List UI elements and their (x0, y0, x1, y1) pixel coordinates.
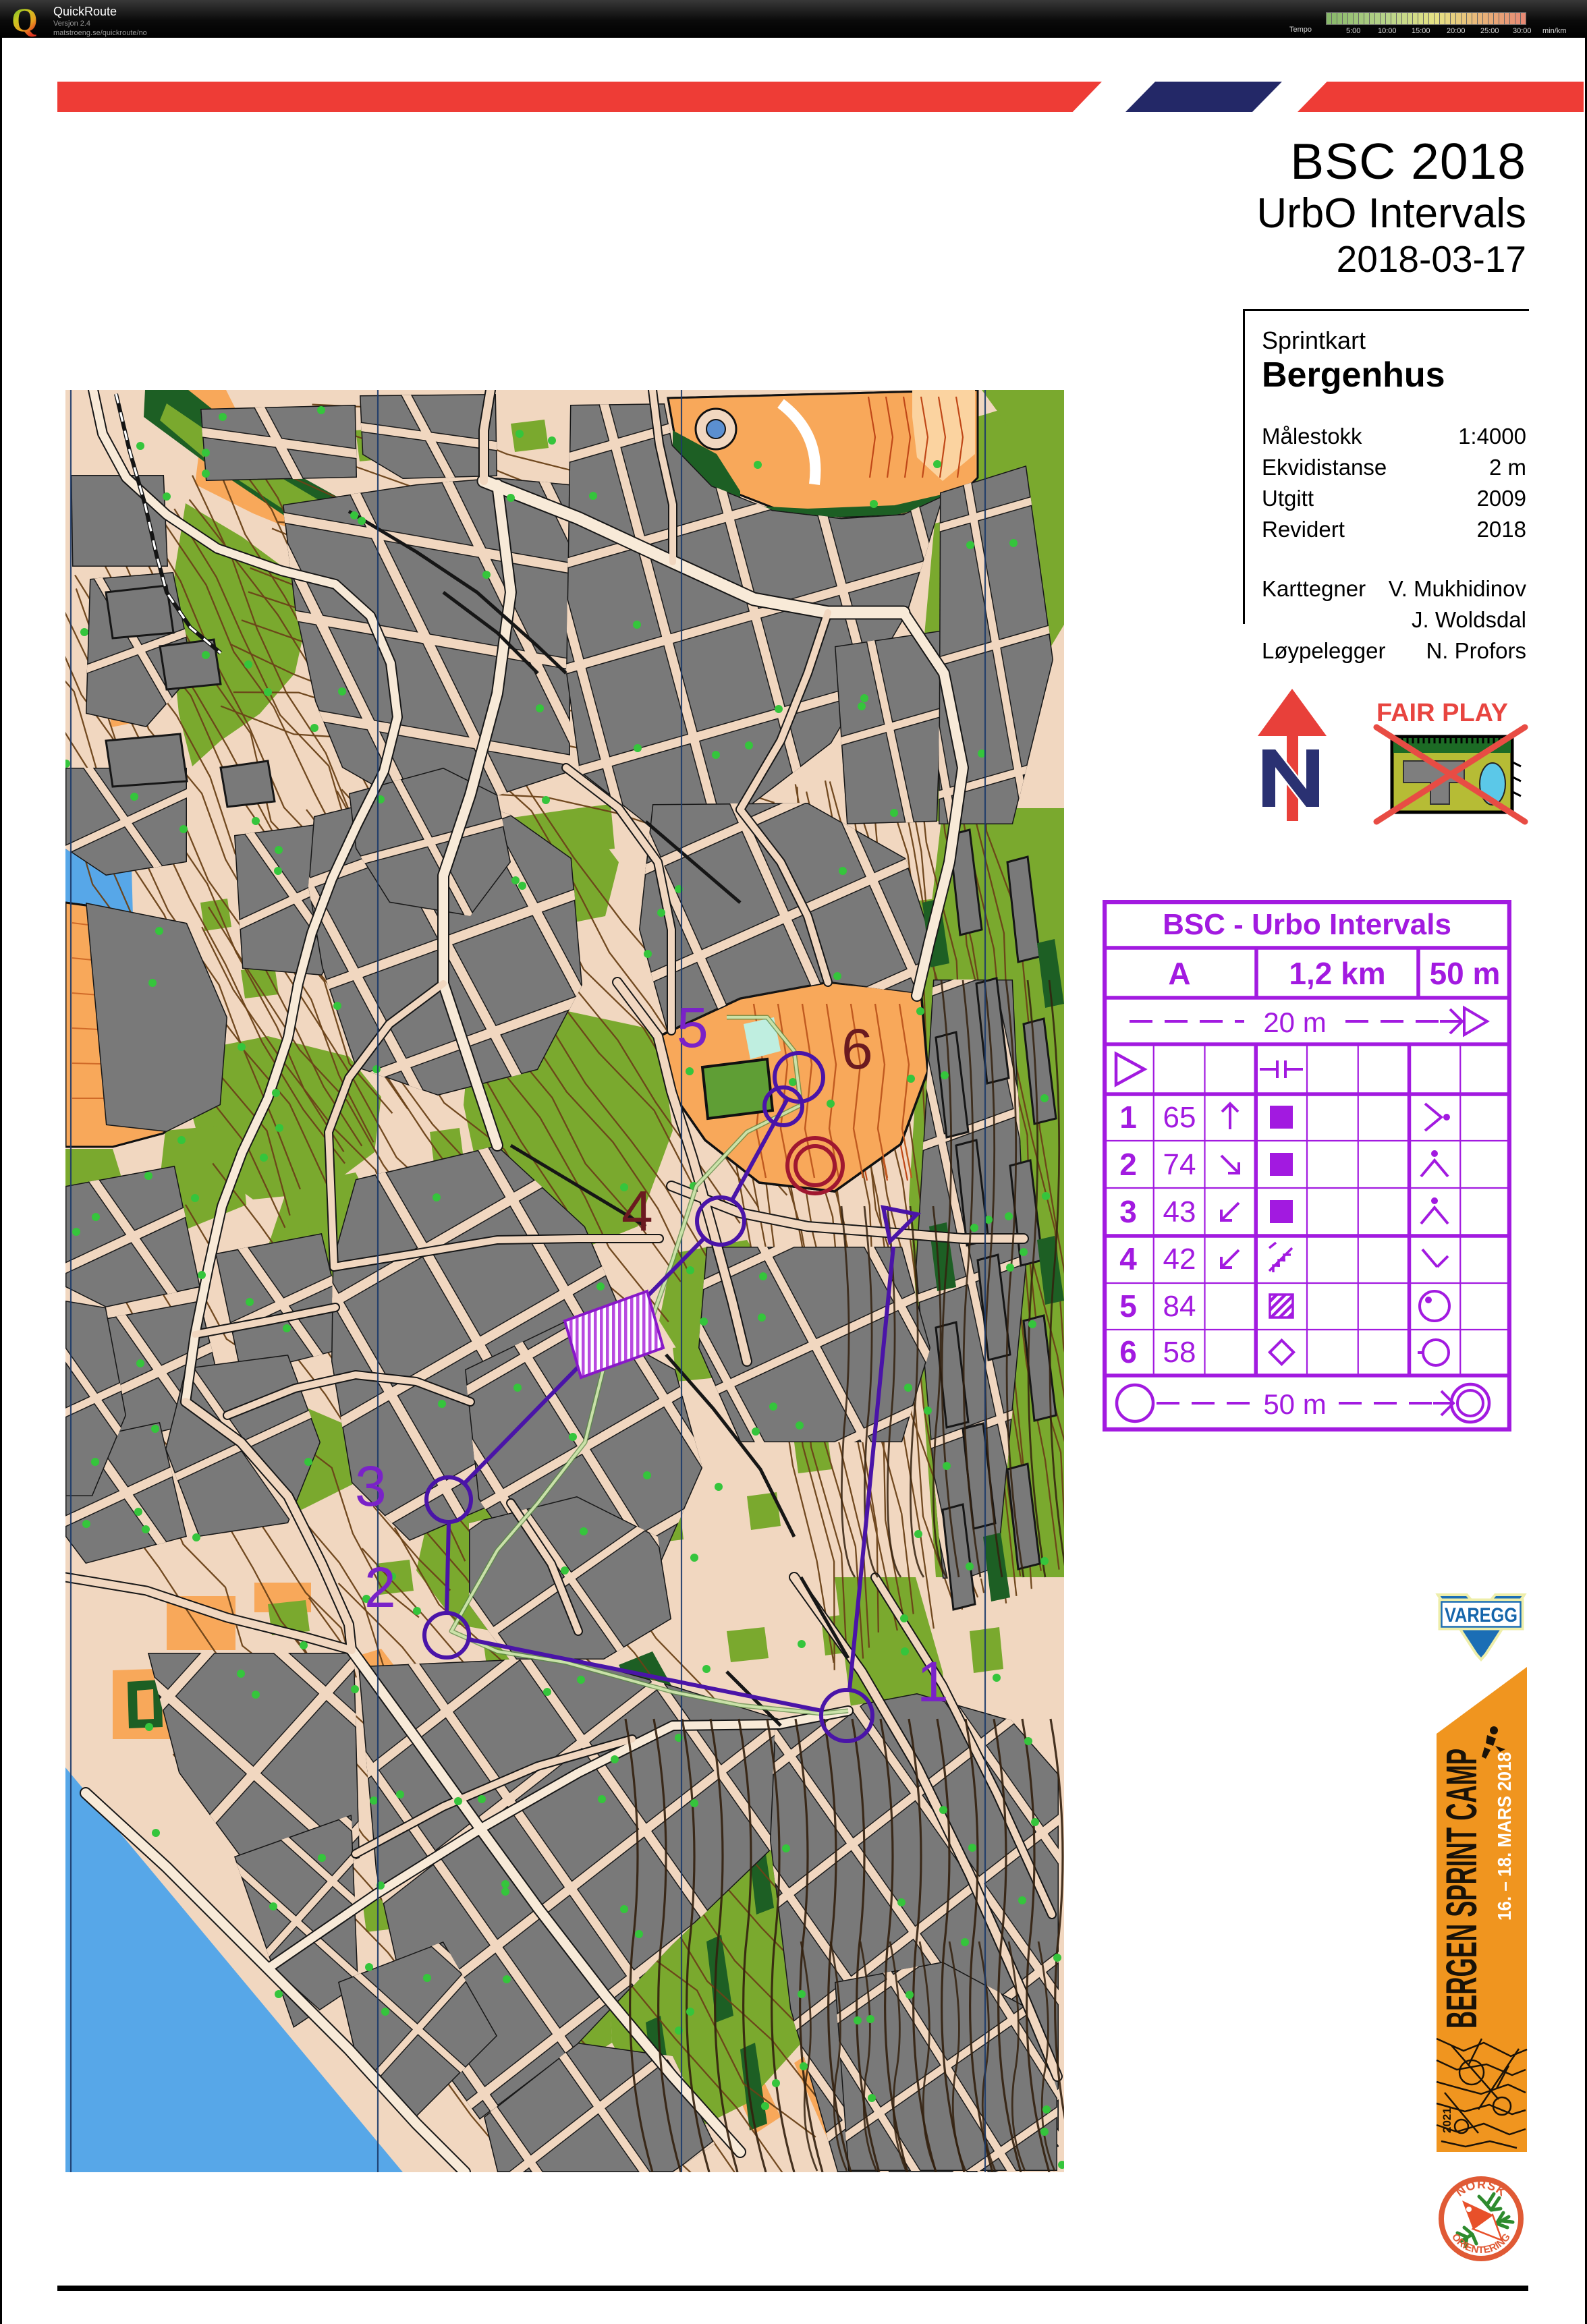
svg-text:2: 2 (364, 1556, 396, 1619)
svg-text:65: 65 (1163, 1101, 1196, 1134)
svg-text:Q: Q (11, 1, 38, 38)
svg-text:1: 1 (917, 1650, 949, 1713)
svg-text:16. – 18. MARS 2018: 16. – 18. MARS 2018 (1494, 1752, 1515, 1921)
svg-text:3: 3 (1119, 1194, 1137, 1229)
svg-text:50 m: 50 m (1430, 956, 1501, 991)
svg-text:74: 74 (1163, 1148, 1196, 1181)
svg-text:6: 6 (1119, 1334, 1137, 1369)
svg-text:1: 1 (1119, 1100, 1137, 1135)
svg-text:4: 4 (1119, 1241, 1137, 1276)
svg-text:2021: 2021 (1441, 2107, 1453, 2133)
svg-text:5: 5 (677, 996, 708, 1059)
svg-text:4: 4 (621, 1179, 653, 1243)
svg-text:50 m: 50 m (1263, 1388, 1326, 1420)
svg-text:BSC - Urbo Intervals: BSC - Urbo Intervals (1163, 908, 1451, 941)
svg-text:BERGEN SPRINT CAMP: BERGEN SPRINT CAMP (1437, 1749, 1486, 2029)
svg-text:5: 5 (1119, 1288, 1137, 1324)
svg-text:VAREGG: VAREGG (1445, 1604, 1518, 1626)
svg-text:84: 84 (1163, 1290, 1196, 1323)
svg-text:2: 2 (1119, 1147, 1137, 1182)
svg-text:A: A (1168, 956, 1190, 991)
svg-text:3: 3 (355, 1454, 387, 1518)
svg-text:6: 6 (841, 1017, 873, 1081)
svg-text:43: 43 (1163, 1195, 1196, 1228)
svg-text:1,2 km: 1,2 km (1289, 956, 1385, 991)
svg-text:20 m: 20 m (1263, 1007, 1326, 1038)
svg-text:42: 42 (1163, 1243, 1196, 1276)
svg-text:58: 58 (1163, 1336, 1196, 1369)
